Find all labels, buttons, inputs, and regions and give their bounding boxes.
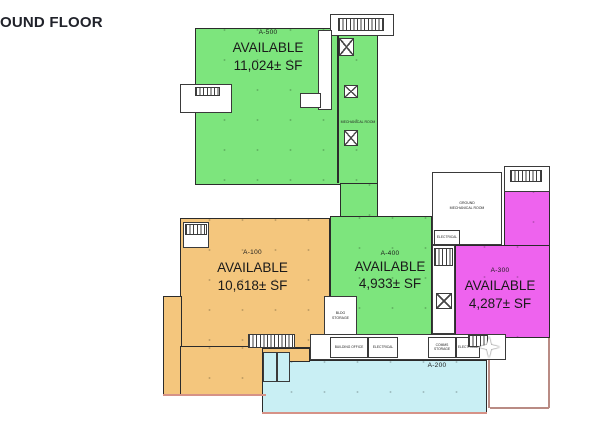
unit-status: AVAILABLE [195,41,341,55]
ground-mechanical-label-line2: MECHANICAL ROOM [434,206,500,210]
electrical-room: ELECTRICAL [368,337,398,358]
exterior-outline [490,407,549,409]
a200-small-room [263,352,277,382]
page-title: OUND FLOOR [0,14,103,31]
unit-code: A-400 [342,250,438,257]
floor-plan-page: OUND FLOOR MECHANICAL ROOM BLDG STORAGE … [0,0,603,422]
unit-status: AVAILABLE [342,260,438,274]
unit-a400-labels: A-400 AVAILABLE 4,933± SF [342,250,438,295]
unit-a100-south-wing [180,346,265,395]
mechanical-room-label: MECHANICAL ROOM [336,120,380,124]
unit-a500-labels: A-500 AVAILABLE 11,024± SF [195,29,341,77]
unit-a100-labels: A-100 AVAILABLE 10,618± SF [180,249,325,297]
unit-code: A-500 [195,29,341,36]
unit-area: 4,933± SF [342,277,438,291]
electrical-room: ELECTRICAL [434,230,460,245]
exterior-outline [548,338,550,408]
elevator-icon [436,293,452,309]
exterior-wall-accent [262,412,487,414]
unit-code: A-300 [452,267,548,274]
exterior-wall-accent [163,394,266,396]
storage-room-label-line2: STORAGE [325,316,356,320]
a200-small-room [277,352,290,382]
elevator-icon [344,85,358,98]
building-office-room: BUILDING OFFICE [330,337,368,358]
south-stair-hatch-icon [248,334,295,348]
unit-code: A-100 [180,249,325,256]
ground-mechanical-label-line1: GROUND [434,201,500,205]
unit-code: A-200 [410,362,464,369]
exterior-outline [488,360,490,408]
a300-stair-hatch-icon [510,170,542,182]
entry-marker-icon [478,336,500,358]
west-stair-hatch-icon [195,87,220,96]
stairwell-icon [339,38,354,56]
elevator-icon [344,130,358,146]
unit-area: 10,618± SF [180,279,325,293]
unit-a200-labels: A-200 [410,362,464,369]
a100-stair-hatch-icon [185,224,207,235]
unit-status: AVAILABLE [452,279,548,293]
storage-room-label-line1: BLDG [325,311,356,315]
unit-status: AVAILABLE [180,261,325,275]
unit-area: 11,024± SF [195,59,341,73]
unit-a300-labels: A-300 AVAILABLE 4,287± SF [452,267,548,315]
comms-storage-room: COMMS STORAGE [428,337,456,358]
unit-area: 4,287± SF [452,297,548,311]
unit-a500-connector [340,183,378,218]
unit-a300-north-region [504,190,550,247]
north-stair-hatch-icon [338,18,384,31]
a500-small-room [300,93,321,108]
